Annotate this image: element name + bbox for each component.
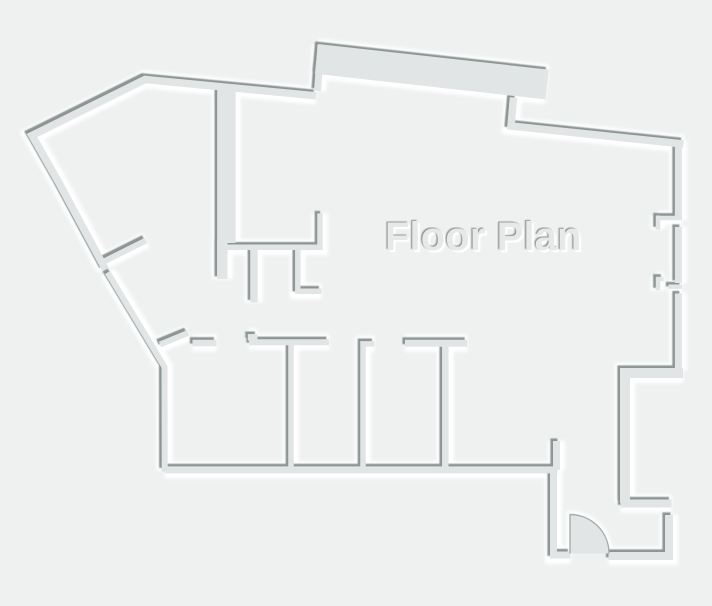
svg-text:Floor Plan: Floor Plan	[385, 215, 582, 259]
